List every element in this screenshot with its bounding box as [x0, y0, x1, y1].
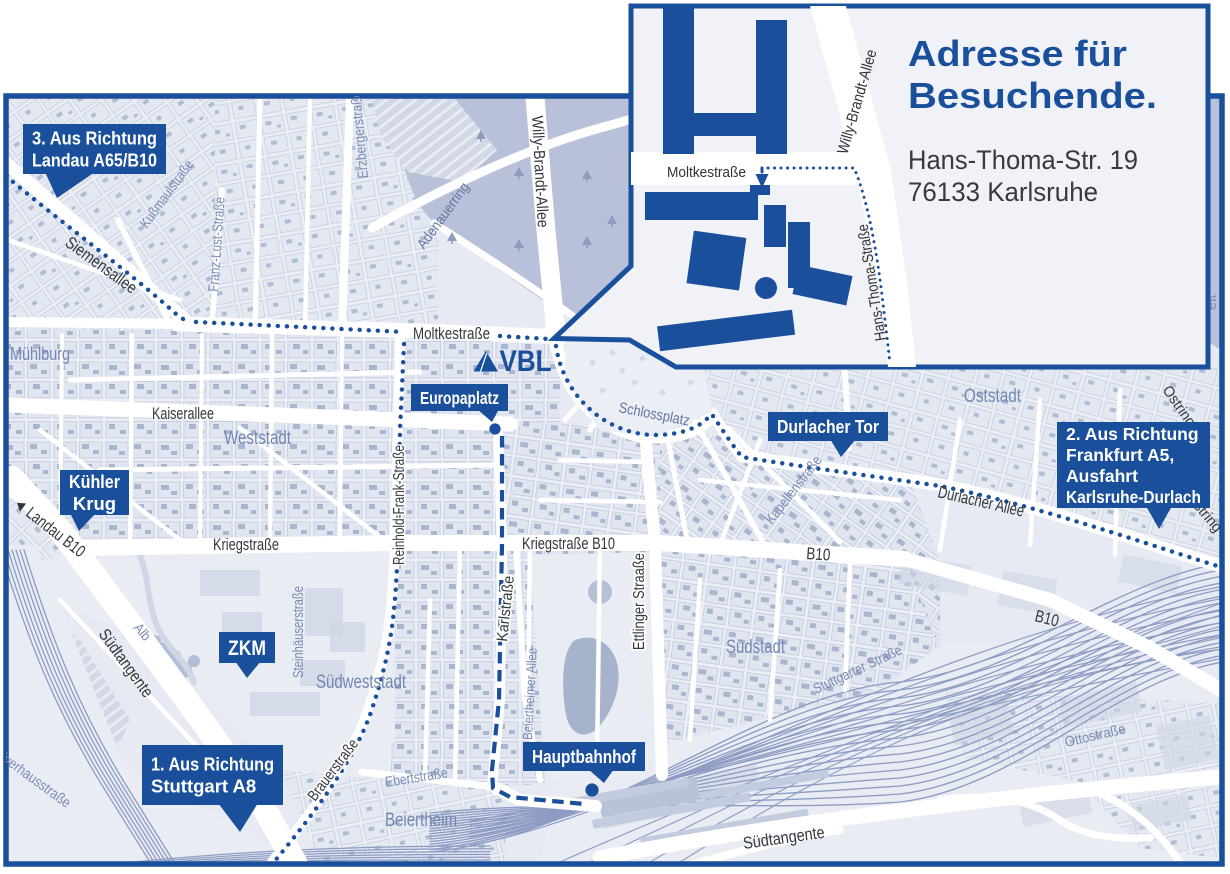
svg-text:B10: B10: [806, 544, 831, 565]
svg-text:Mühlburg: Mühlburg: [10, 344, 70, 364]
svg-text:Krug: Krug: [73, 493, 116, 514]
svg-text:Europaplatz: Europaplatz: [420, 388, 499, 408]
svg-text:Kühler: Kühler: [69, 471, 120, 492]
svg-text:Beiertheim: Beiertheim: [385, 810, 457, 831]
svg-text:ZKM: ZKM: [228, 637, 266, 660]
svg-text:Adresse für: Adresse für: [908, 33, 1127, 74]
svg-text:Landau A65/B10: Landau A65/B10: [32, 150, 157, 171]
svg-text:Stuttgart A8: Stuttgart A8: [151, 776, 256, 797]
svg-text:Kriegstraße B10: Kriegstraße B10: [522, 534, 615, 553]
svg-text:Moltkestraße: Moltkestraße: [413, 324, 490, 343]
svg-text:Kaiserallee: Kaiserallee: [152, 404, 214, 423]
svg-text:Durlacher Tor: Durlacher Tor: [777, 416, 879, 437]
svg-text:Südstadt: Südstadt: [726, 637, 786, 658]
svg-text:Steinhäuserstraße: Steinhäuserstraße: [291, 586, 307, 678]
svg-text:3. Aus Richtung: 3. Aus Richtung: [32, 128, 157, 149]
svg-text:Südweststadt: Südweststadt: [316, 672, 407, 693]
svg-text:Frankfurt A5,: Frankfurt A5,: [1066, 445, 1174, 465]
svg-text:2. Aus Richtung: 2. Aus Richtung: [1066, 424, 1199, 444]
svg-text:Kriegstraße: Kriegstraße: [213, 535, 279, 554]
svg-text:Weststadt: Weststadt: [224, 428, 292, 449]
svg-text:Oststadt: Oststadt: [964, 386, 1022, 407]
svg-text:Ettlinger Straaße: Ettlinger Straaße: [631, 553, 648, 650]
svg-text:Hauptbahnhof: Hauptbahnhof: [532, 746, 637, 767]
svg-text:1. Aus Richtung: 1. Aus Richtung: [151, 754, 274, 775]
svg-text:Hans-Thoma-Str. 19: Hans-Thoma-Str. 19: [908, 145, 1138, 175]
svg-text:Besuchende.: Besuchende.: [908, 75, 1157, 116]
svg-text:Karlsruhe-Durlach: Karlsruhe-Durlach: [1066, 487, 1201, 507]
svg-text:Moltkestraße: Moltkestraße: [667, 164, 746, 181]
svg-text:Ausfahrt: Ausfahrt: [1066, 466, 1138, 486]
svg-text:VBL: VBL: [500, 345, 552, 378]
svg-text:Reinhold-Frank-Straße: Reinhold-Frank-Straße: [391, 445, 408, 565]
svg-text:76133 Karlsruhe: 76133 Karlsruhe: [908, 177, 1098, 207]
